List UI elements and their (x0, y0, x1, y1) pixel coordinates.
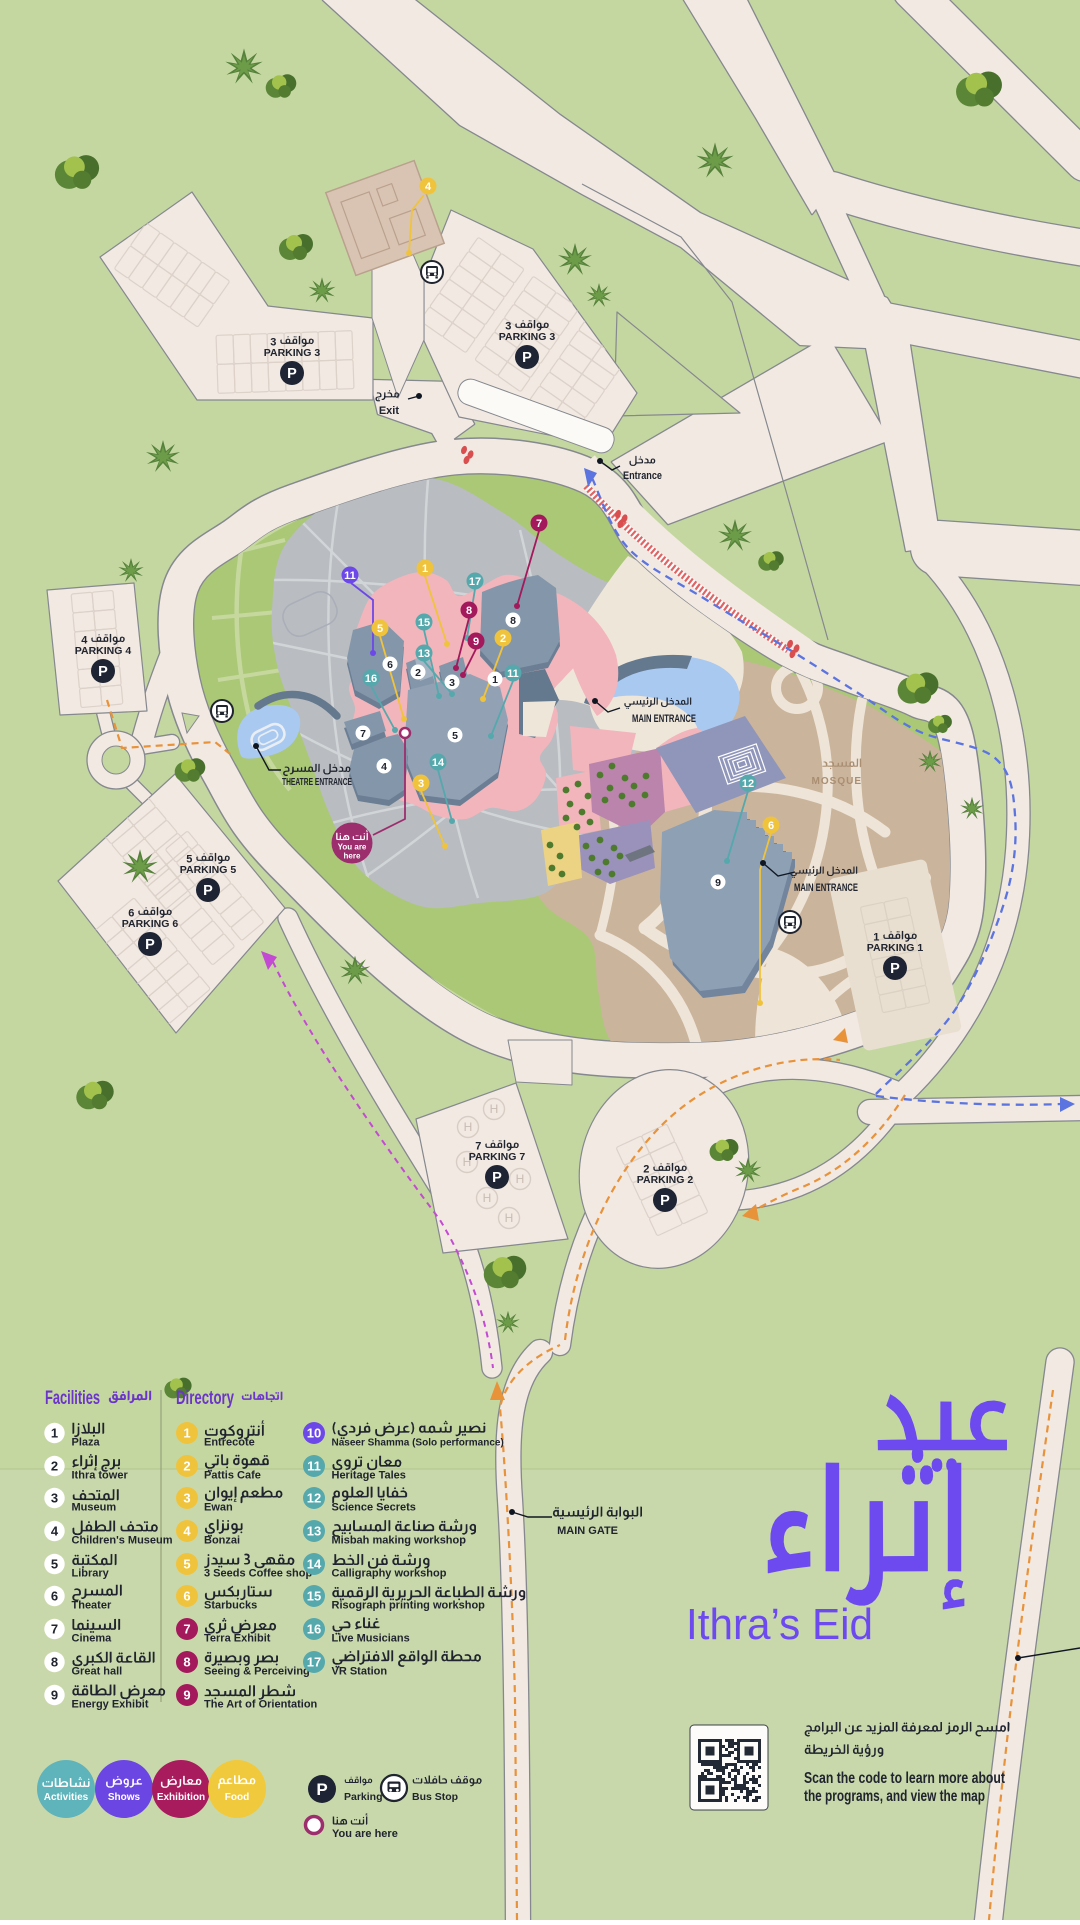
svg-text:PARKING 7: PARKING 7 (469, 1151, 526, 1163)
svg-text:15: 15 (307, 1589, 321, 1604)
svg-text:16: 16 (307, 1622, 321, 1637)
svg-text:MAIN ENTRANCE: MAIN ENTRANCE (794, 882, 858, 894)
svg-text:Parking: Parking (344, 1791, 383, 1803)
svg-text:13: 13 (418, 648, 430, 660)
svg-text:H: H (464, 1120, 473, 1134)
svg-text:1: 1 (51, 1426, 58, 1441)
svg-text:2: 2 (415, 667, 421, 679)
svg-text:here: here (344, 852, 361, 861)
svg-text:Calligraphy workshop: Calligraphy workshop (332, 1568, 447, 1580)
svg-text:H: H (483, 1191, 492, 1205)
svg-text:9: 9 (183, 1688, 190, 1703)
svg-text:15: 15 (418, 617, 430, 629)
svg-text:11: 11 (507, 668, 519, 680)
svg-text:P: P (203, 883, 213, 899)
svg-text:Exhibition: Exhibition (157, 1792, 205, 1803)
svg-text:8: 8 (510, 615, 516, 627)
svg-text:VR Station: VR Station (332, 1666, 388, 1678)
svg-text:Facilities: Facilities (45, 1388, 100, 1409)
svg-text:2: 2 (500, 633, 506, 645)
svg-text:8: 8 (183, 1655, 190, 1670)
svg-text:H: H (490, 1102, 499, 1116)
svg-text:7: 7 (183, 1622, 190, 1637)
svg-text:Starbucks: Starbucks (204, 1600, 257, 1612)
svg-text:MAIN ENTRANCE: MAIN ENTRANCE (632, 713, 696, 725)
svg-text:Heritage Tales: Heritage Tales (332, 1470, 406, 1482)
svg-text:12: 12 (307, 1491, 321, 1506)
svg-text:Children's Museum: Children's Museum (72, 1535, 173, 1547)
svg-text:17: 17 (469, 576, 481, 588)
svg-text:12: 12 (742, 778, 754, 790)
svg-text:1: 1 (422, 563, 428, 575)
svg-text:5: 5 (183, 1557, 190, 1572)
svg-text:10: 10 (307, 1426, 321, 1441)
svg-text:Bus Stop: Bus Stop (412, 1791, 458, 1803)
svg-text:7: 7 (51, 1622, 58, 1637)
svg-text:5: 5 (452, 730, 458, 742)
svg-text:PARKING 5: PARKING 5 (180, 864, 237, 876)
svg-text:Terra Exhibit: Terra Exhibit (204, 1633, 271, 1645)
svg-text:P: P (287, 366, 297, 382)
svg-text:Directory: Directory (176, 1388, 234, 1409)
svg-text:6: 6 (768, 820, 774, 832)
svg-text:PARKING 3: PARKING 3 (499, 331, 556, 343)
svg-text:8: 8 (51, 1655, 58, 1670)
svg-text:Activities: Activities (44, 1792, 89, 1803)
svg-text:H: H (505, 1211, 514, 1225)
svg-text:P: P (98, 664, 108, 680)
svg-text:You are: You are (338, 843, 367, 852)
svg-text:P: P (316, 1780, 327, 1799)
svg-text:11: 11 (344, 570, 356, 582)
svg-text:16: 16 (365, 673, 377, 685)
svg-text:14: 14 (307, 1557, 322, 1572)
svg-text:P: P (890, 961, 900, 977)
svg-text:4: 4 (183, 1524, 191, 1539)
svg-text:Live Musicians: Live Musicians (332, 1633, 410, 1645)
svg-text:PARKING 2: PARKING 2 (637, 1174, 694, 1186)
svg-text:Pattis Cafe: Pattis Cafe (204, 1470, 261, 1482)
svg-text:Energy Exhibit: Energy Exhibit (72, 1699, 149, 1711)
svg-text:PARKING 3: PARKING 3 (264, 347, 321, 359)
svg-text:the programs, and view the map: the programs, and view the map (804, 1788, 985, 1805)
svg-text:Ithra’s Eid: Ithra’s Eid (686, 1600, 873, 1649)
svg-text:11: 11 (307, 1459, 321, 1474)
svg-text:Museum: Museum (72, 1502, 117, 1514)
svg-text:9: 9 (715, 877, 721, 889)
svg-text:Cinema: Cinema (72, 1633, 113, 1645)
svg-text:3: 3 (183, 1491, 190, 1506)
svg-text:17: 17 (307, 1655, 321, 1670)
svg-text:3 Seeds Coffee shop: 3 Seeds Coffee shop (204, 1568, 312, 1580)
svg-text:Ithra tower: Ithra tower (72, 1470, 129, 1482)
svg-text:14: 14 (432, 757, 445, 769)
svg-text:P: P (522, 350, 532, 366)
svg-text:7: 7 (360, 728, 366, 740)
svg-text:Theater: Theater (72, 1600, 112, 1612)
svg-text:MOSQUE: MOSQUE (812, 776, 862, 787)
svg-text:5: 5 (377, 623, 383, 635)
svg-text:Risograph printing workshop: Risograph printing workshop (332, 1600, 486, 1612)
svg-text:Naseer Shamma (Solo performanc: Naseer Shamma (Solo performance) (332, 1438, 504, 1449)
svg-text:MAIN GATE: MAIN GATE (557, 1525, 618, 1537)
svg-text:The Art of Orientation: The Art of Orientation (204, 1699, 318, 1711)
svg-text:PARKING 1: PARKING 1 (867, 942, 924, 954)
svg-text:3: 3 (51, 1491, 58, 1506)
svg-text:Ewan: Ewan (204, 1502, 233, 1514)
svg-text:PARKING 4: PARKING 4 (75, 645, 132, 657)
svg-text:4: 4 (425, 181, 432, 193)
svg-text:7: 7 (536, 518, 542, 530)
svg-text:P: P (492, 1170, 502, 1186)
svg-text:1: 1 (492, 674, 498, 686)
svg-text:3: 3 (449, 677, 455, 689)
svg-text:Exit: Exit (379, 405, 400, 417)
svg-text:2: 2 (51, 1459, 58, 1474)
svg-text:6: 6 (183, 1589, 190, 1604)
svg-text:2: 2 (183, 1459, 190, 1474)
svg-text:Food: Food (225, 1792, 249, 1803)
svg-text:6: 6 (387, 659, 393, 671)
svg-text:4: 4 (51, 1524, 59, 1539)
svg-text:3: 3 (418, 778, 424, 790)
svg-text:H: H (516, 1172, 525, 1186)
svg-text:6: 6 (51, 1589, 58, 1604)
svg-text:P: P (660, 1193, 670, 1209)
svg-text:You are here: You are here (332, 1828, 398, 1840)
svg-text:5: 5 (51, 1557, 58, 1572)
svg-text:THEATRE ENTRANCE: THEATRE ENTRANCE (282, 776, 352, 788)
svg-text:Science Secrets: Science Secrets (332, 1502, 416, 1514)
svg-text:4: 4 (381, 761, 387, 773)
svg-text:9: 9 (473, 636, 479, 648)
svg-text:Bonzai: Bonzai (204, 1535, 240, 1547)
svg-text:Seeing & Perceiving: Seeing & Perceiving (204, 1666, 310, 1678)
svg-text:Entrecote: Entrecote (204, 1437, 255, 1449)
svg-text:1: 1 (183, 1426, 190, 1441)
svg-text:Scan the code to learn more ab: Scan the code to learn more about (804, 1770, 1005, 1787)
svg-text:P: P (145, 937, 155, 953)
svg-text:PARKING 6: PARKING 6 (122, 918, 179, 930)
svg-text:13: 13 (307, 1524, 321, 1539)
svg-text:Great hall: Great hall (72, 1666, 123, 1678)
svg-text:Misbah making workshop: Misbah making workshop (332, 1535, 467, 1547)
svg-text:Plaza: Plaza (72, 1437, 101, 1449)
svg-text:Library: Library (72, 1568, 110, 1580)
svg-text:8: 8 (466, 605, 472, 617)
svg-text:9: 9 (51, 1688, 58, 1703)
svg-text:Entrance: Entrance (623, 470, 662, 482)
svg-text:Shows: Shows (108, 1792, 141, 1803)
